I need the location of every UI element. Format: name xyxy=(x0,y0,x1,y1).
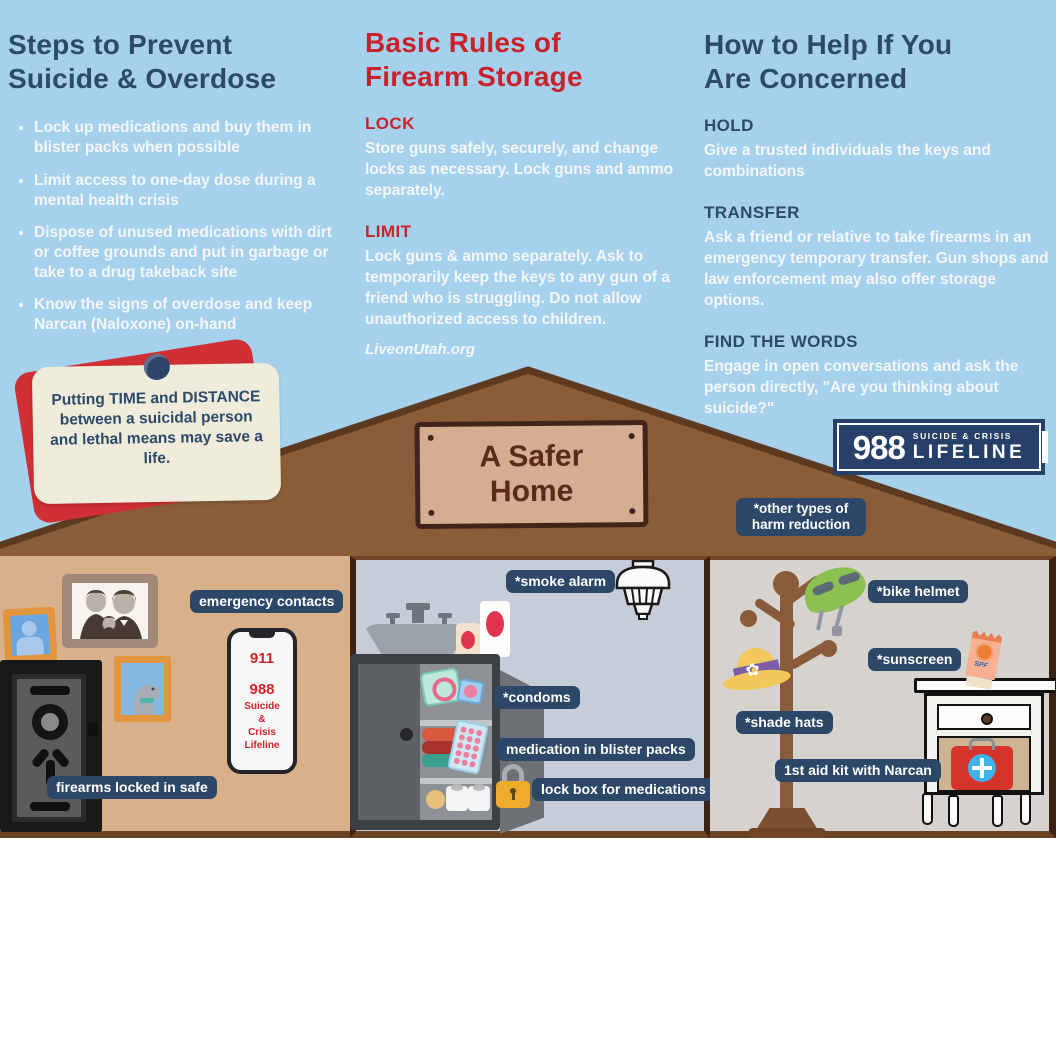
bottom-margin xyxy=(0,838,1056,1056)
padlock-icon xyxy=(496,764,530,812)
hold-body: Give a trusted individuals the keys and … xyxy=(704,141,1054,183)
condom-wrapper-icon xyxy=(456,678,485,705)
hat-flower-icon: ✿ xyxy=(744,660,761,682)
sign-nail-icon xyxy=(629,508,635,514)
988-lifeline-label: LIFELINE xyxy=(913,443,1025,462)
bullet-item: Know the signs of overdose and keep Narc… xyxy=(34,295,338,335)
help-column: How to Help If You Are Concerned HOLD Gi… xyxy=(704,28,1054,420)
first-aid-badge: 1st aid kit with Narcan xyxy=(775,759,941,782)
sink-icon xyxy=(366,603,470,661)
cabinet-shelves xyxy=(420,664,492,820)
gun-safe-icon xyxy=(0,660,102,832)
emergency-contacts-badge: emergency contacts xyxy=(190,590,343,613)
safer-home-infographic: Steps to Prevent Suicide & Overdose Lock… xyxy=(0,0,1056,1056)
sticky-note-text: Putting TIME and DISTANCE between a suic… xyxy=(46,387,266,471)
find-the-words-heading: FIND THE WORDS xyxy=(704,332,1054,352)
room-bathroom: *smoke alarm *condoms medication in blis… xyxy=(350,556,710,838)
hold-heading: HOLD xyxy=(704,116,1054,136)
bullet-item: Limit access to one-day dose during a me… xyxy=(34,171,338,211)
smoke-alarm-badge: *smoke alarm xyxy=(506,570,615,593)
push-pin-icon xyxy=(144,354,170,380)
emergency-phone-icon: 911 988 Suicide & Crisis Lifeline xyxy=(227,628,297,774)
lock-box-badge: lock box for medications xyxy=(532,778,715,801)
limit-body: Lock guns & ammo separately. Ask to temp… xyxy=(365,247,697,331)
firearms-locked-badge: firearms locked in safe xyxy=(47,776,217,799)
condom-box-icon xyxy=(420,667,463,707)
cabinet-knob xyxy=(400,728,413,741)
limit-heading: LIMIT xyxy=(365,222,697,242)
988-tagline: SUICIDE & CRISIS xyxy=(913,432,1012,441)
toilet-paper-icon xyxy=(446,786,468,811)
bike-helmet-badge: *bike helmet xyxy=(868,580,968,603)
first-aid-kit-icon xyxy=(951,746,1013,790)
help-title: How to Help If You Are Concerned xyxy=(704,28,1054,96)
find-the-words-body: Engage in open conversations and ask the… xyxy=(704,357,1054,420)
room-entry: 911 988 Suicide & Crisis Lifeline emerge… xyxy=(0,556,350,838)
lotion-bottle-icon xyxy=(480,601,510,657)
sign-nail-icon xyxy=(428,510,434,516)
sign-nail-icon xyxy=(629,433,635,439)
sign-nail-icon xyxy=(428,435,434,441)
988-logo-bar xyxy=(1042,431,1048,463)
lock-body: Store guns safely, securely, and change … xyxy=(365,139,697,202)
sticky-note: Putting TIME and DISTANCE between a suic… xyxy=(15,345,300,525)
coat-rack-foot xyxy=(748,828,826,838)
coat-rack-base xyxy=(756,808,818,830)
nightstand-drawer xyxy=(937,704,1031,730)
coat-rack-knob xyxy=(740,610,757,627)
bullet-item: Dispose of unused medications with dirt … xyxy=(34,223,338,283)
dog-photo-icon xyxy=(114,656,171,722)
phone-988: 988 xyxy=(249,681,274,698)
liveon-utah-link[interactable]: LiveonUtah.org xyxy=(365,341,697,358)
standing-photo-frame-icon xyxy=(3,607,58,664)
lock-heading: LOCK xyxy=(365,114,697,134)
prevent-bullet-list: Lock up medications and buy them in blis… xyxy=(8,118,338,335)
coat-rack-knob xyxy=(820,640,837,657)
phone-911: 911 xyxy=(250,650,274,667)
room-hallway: ✿ SPF *bike helmet * xyxy=(710,556,1056,838)
prevent-column: Steps to Prevent Suicide & Overdose Lock… xyxy=(8,28,338,348)
nightstand-open-shelf xyxy=(937,736,1031,792)
sponge-icon xyxy=(426,790,445,809)
bike-helmet-icon xyxy=(800,564,870,640)
sign-text: A Safer Home xyxy=(479,440,584,510)
sticky-note-paper: Putting TIME and DISTANCE between a suic… xyxy=(32,363,281,504)
sunscreen-badge: *sunscreen xyxy=(868,648,961,671)
shade-hat-icon: ✿ xyxy=(718,640,793,707)
smoke-alarm-icon xyxy=(610,560,676,622)
transfer-heading: TRANSFER xyxy=(704,203,1054,223)
firearm-title: Basic Rules of Firearm Storage xyxy=(365,26,697,94)
blister-packs-badge: medication in blister packs xyxy=(497,738,695,761)
phone-lifeline-label: Suicide & Crisis Lifeline xyxy=(244,700,280,752)
family-photo-icon xyxy=(62,574,158,648)
transfer-body: Ask a friend or relative to take firearm… xyxy=(704,228,1054,312)
condoms-badge: *condoms xyxy=(494,686,580,709)
988-number: 988 xyxy=(853,431,905,464)
nightstand-icon xyxy=(914,678,1056,830)
bullet-item: Lock up medications and buy them in blis… xyxy=(34,118,338,158)
cabinet-closed-door xyxy=(358,664,420,820)
phone-notch xyxy=(249,632,275,638)
safer-home-sign: A Safer Home xyxy=(415,420,649,529)
bathroom-cabinet-icon xyxy=(350,654,500,830)
lotion-bottle-icon xyxy=(456,623,480,657)
988-lifeline-logo: 988 SUICIDE & CRISIS LIFELINE xyxy=(833,419,1045,475)
toilet-paper-icon xyxy=(468,786,490,811)
shade-hats-badge: *shade hats xyxy=(736,711,833,734)
other-harm-reduction-badge: *other types of harm reduction xyxy=(736,498,866,536)
prevent-title: Steps to Prevent Suicide & Overdose xyxy=(8,28,338,96)
firearm-column: Basic Rules of Firearm Storage LOCK Stor… xyxy=(365,26,697,358)
988-logo-frame: 988 SUICIDE & CRISIS LIFELINE xyxy=(837,423,1041,471)
